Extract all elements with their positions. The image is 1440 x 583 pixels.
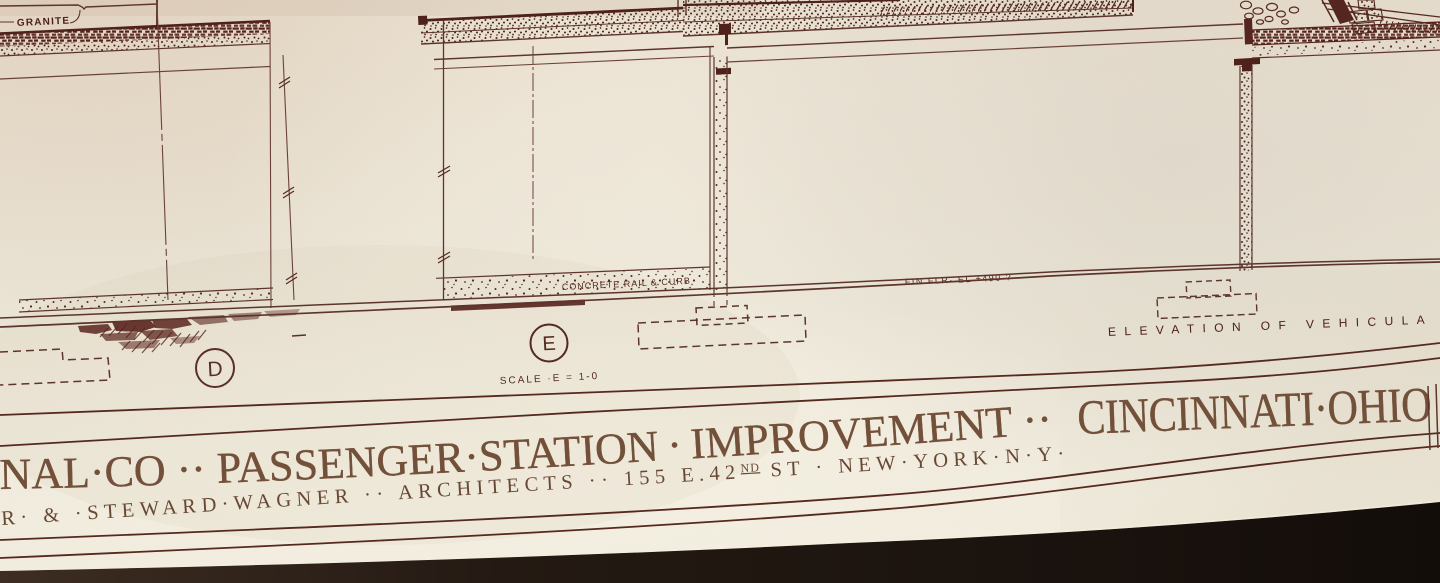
svg-text:E: E: [542, 333, 556, 356]
svg-text:D: D: [207, 358, 223, 382]
